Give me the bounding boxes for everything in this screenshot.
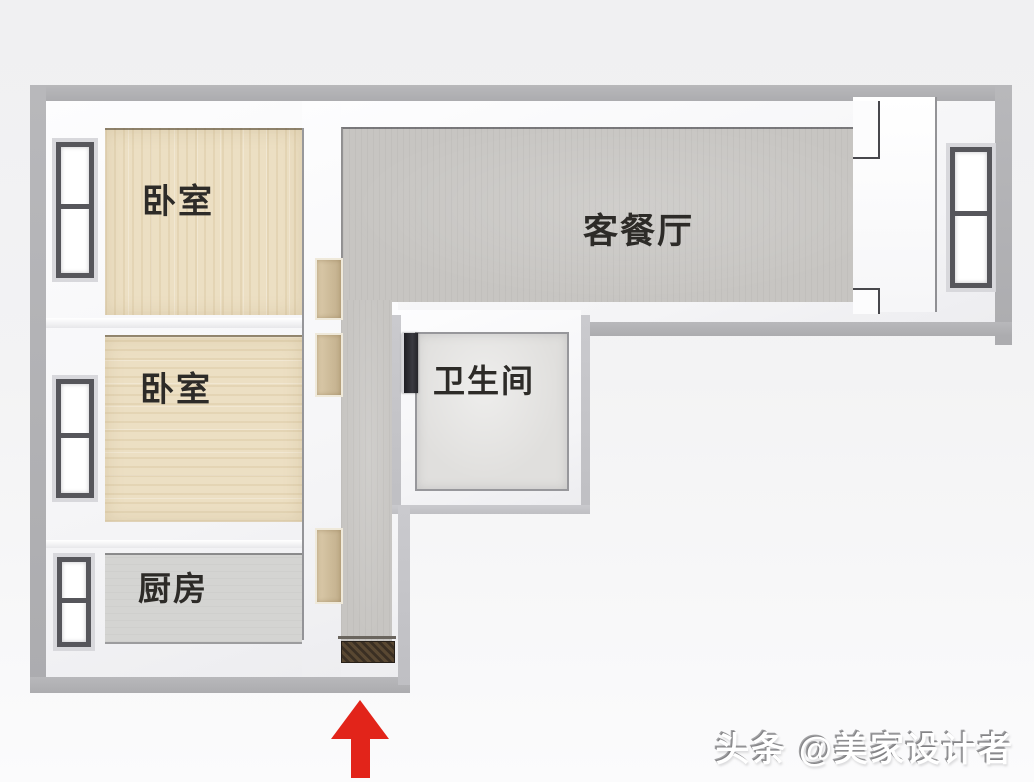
divider-bedroom-kitchen [46,540,302,548]
floor-plan: 卧室 卧室 厨房 客餐厅 卫生间 头条 @美家设计者 [0,0,1034,782]
wall-bathroom-right [581,315,590,514]
bedroom-1-label: 卧室 [142,174,214,223]
wall-step-top [853,101,880,159]
middle-wall-edge [302,128,304,640]
bedroom-2-label: 卧室 [140,362,212,411]
wall-bathroom-bottom [392,505,590,514]
entrance-arrow-head [331,700,389,739]
window-bar [954,211,988,216]
wall-living-bottom [586,322,1012,336]
living-dining-label: 客餐厅 [583,203,694,254]
entrance-doormat [341,641,395,663]
bedroom-1-door [315,258,343,320]
kitchen-door [315,528,343,604]
bedroom-2-door [315,333,343,397]
watermark: 头条 @美家设计者 [715,722,1014,771]
bedroom-2-window [56,379,94,498]
window-bar [60,433,90,438]
bedroom-1-window [56,142,94,278]
bathroom-door [402,333,418,393]
wall-step-bottom [853,288,880,314]
entrance-arrow-stem [351,737,370,778]
wall-bathroom-left [392,315,401,513]
living-dining-window [950,147,992,288]
kitchen-window [57,557,91,647]
entrance-threshold [338,636,396,639]
corridor-floor [341,300,392,642]
window-bar [61,598,87,603]
wall-corridor-right [398,505,410,685]
bathroom-label: 卫生间 [433,356,535,402]
kitchen-label: 厨房 [138,562,208,610]
wall-left [30,85,46,693]
window-bar [60,204,90,209]
wall-bottom-left [30,677,410,693]
wall-right [995,85,1012,345]
divider-bedrooms [46,318,302,328]
